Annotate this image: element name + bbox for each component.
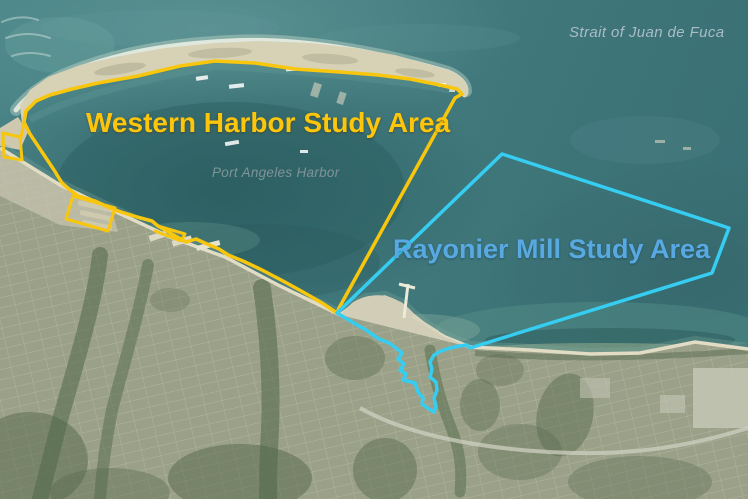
port-angeles-harbor-label: Port Angeles Harbor — [212, 166, 340, 180]
strait-of-juan-de-fuca-label: Strait of Juan de Fuca — [569, 25, 725, 40]
aerial-map: Strait of Juan de Fuca Western Harbor St… — [0, 0, 748, 499]
western-harbor-study-area-label: Western Harbor Study Area — [86, 109, 450, 137]
rayonier-mill-study-area-label: Rayonier Mill Study Area — [393, 236, 710, 263]
